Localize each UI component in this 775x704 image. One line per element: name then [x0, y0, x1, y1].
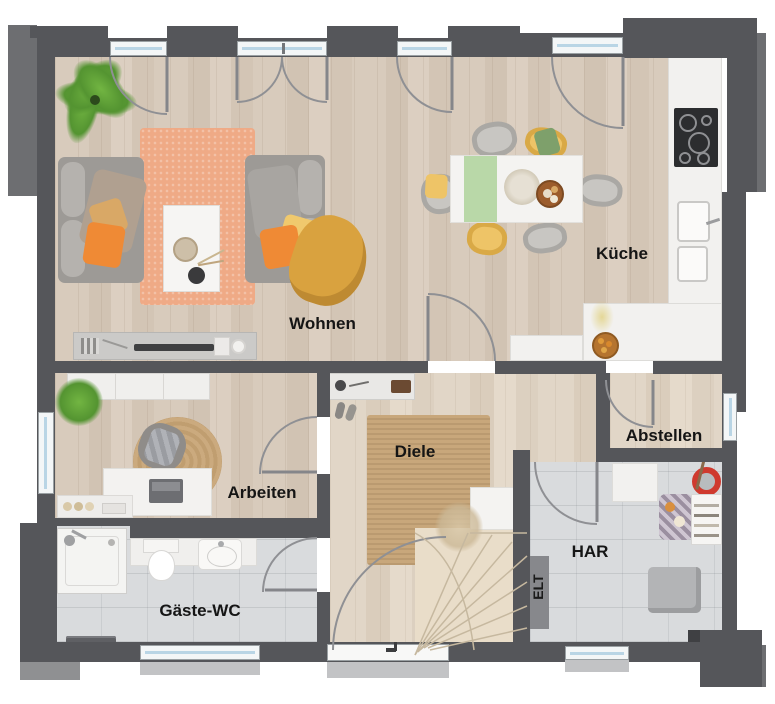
room-label-diele: Diele	[375, 442, 455, 462]
room-label-har: HAR	[560, 542, 620, 562]
room-label-wohnen: Wohnen	[270, 314, 375, 334]
room-label-abstellen: Abstellen	[608, 426, 720, 446]
room-label-elt: ELT	[530, 557, 548, 617]
room-label-kueche: Küche	[574, 244, 670, 264]
door-swing-arcs	[0, 0, 775, 704]
room-label-gaeste-wc: Gäste-WC	[140, 601, 260, 621]
stair-treads	[415, 533, 527, 655]
floor-plan: Wohnen Küche Arbeiten Diele Abstellen HA…	[0, 0, 775, 704]
room-label-arbeiten: Arbeiten	[210, 483, 314, 503]
